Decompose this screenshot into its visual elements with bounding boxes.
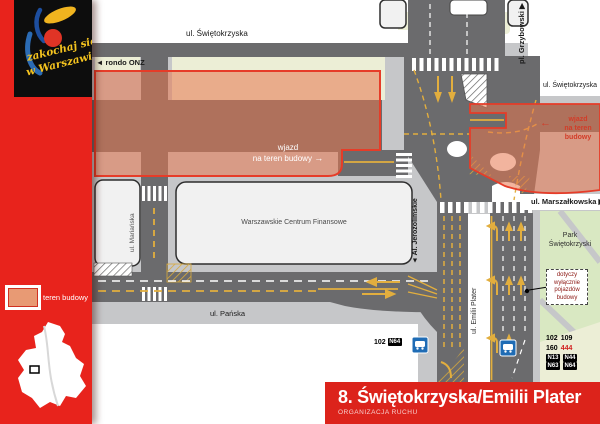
street-label-emilii-plater: ul. Emilii Plater [471,288,478,334]
warsaw-logo-art: zakochaj się w Warszawie [14,0,92,97]
city-boundary-shape [18,322,86,408]
construction-entry-label-east: wjazd na teren budowy [557,115,599,142]
page-subtitle: ORGANIZACJA RUCHU [338,409,600,416]
street-label-rondo-onz: ◄ rondo ONZ [96,58,145,67]
park-label: Park Świętokrzyski [543,232,597,249]
warsaw-outline-map [10,320,90,420]
street-label-marianska: ul. Mariańska [129,213,136,252]
legend-construction-swatch [8,288,38,307]
page-title: 8. Świętokrzyska/Emilii Plater [338,387,600,408]
legend-teren-budowy: teren budowy [8,288,88,307]
sidebar: zakochaj się w Warszawie teren budowy [0,0,92,424]
night-line-badge: N13 [546,354,560,362]
bus-stop-icon-west [412,337,428,353]
street-label-marszalkowska: ul. Marszałkowska ▶ [531,197,600,206]
construction-vehicles-notice: dotyczy wyłącznie pojazdów budowy [546,269,588,305]
street-label-pl-grzybowski: pl. Grzybowski ▶ [517,3,526,64]
traffic-organization-poster: { "colors": { "accent_red": "#e8231c", "… [0,0,600,424]
night-line-badge: N44 [563,354,577,362]
express-line-number: 444 [561,344,573,354]
street-label-swietokrzyska-east: ul. Świętokrzyska [543,82,597,89]
construction-entry-label-west: wjazd na teren budowy → [232,143,344,164]
street-label-swietokrzyska-top: ul. Świętokrzyska [186,29,248,38]
left-arrow-icon: ← [540,117,551,129]
night-line-badge: N63 [546,362,560,370]
legend-label: teren budowy [43,293,88,302]
notice-pointer-dot [525,289,529,293]
night-line-badge: N64 [563,362,577,370]
bus-stop-east-lines: 102 109 160 444 N13 N44 N63 N64 [546,334,577,370]
night-line-badge: N64 [388,338,402,346]
title-bar: 8. Świętokrzyska/Emilii Plater ORGANIZAC… [325,382,600,424]
right-arrow-icon: → [314,153,323,163]
street-label-panska: ul. Pańska [210,309,245,318]
street-label-al-jerozolimskie: ◄ Al. Jerozolimskie [412,198,419,264]
bus-stop-west-lines: 102 N64 [374,338,402,346]
bus-stop-icon-east [500,340,516,356]
building-label-wcf: Warszawskie Centrum Finansowe [196,219,392,226]
warsaw-logo: zakochaj się w Warszawie [14,0,92,97]
